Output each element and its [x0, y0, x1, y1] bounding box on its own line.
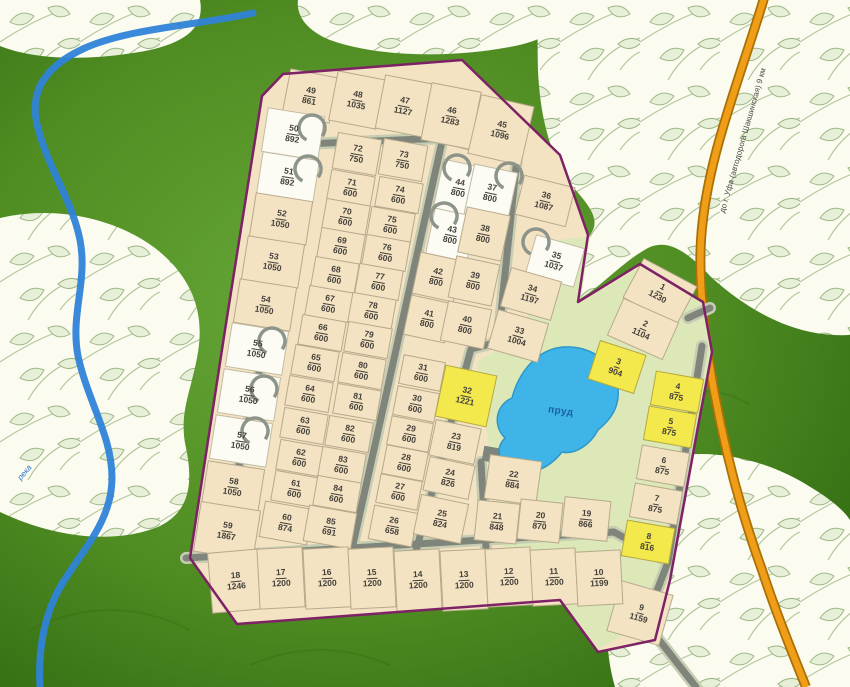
plot-22[interactable] — [484, 455, 542, 506]
plot-40[interactable] — [440, 301, 491, 349]
plot-18[interactable] — [207, 549, 264, 613]
plot-8[interactable] — [621, 520, 675, 564]
plot-11[interactable] — [530, 548, 578, 606]
plot-54[interactable] — [233, 279, 296, 331]
plot-15[interactable] — [348, 547, 396, 609]
plot-72[interactable] — [332, 132, 382, 175]
plot-12[interactable] — [485, 547, 533, 607]
forest-left — [0, 213, 200, 537]
plot-32[interactable] — [435, 365, 497, 427]
plot-17[interactable] — [257, 547, 305, 609]
plot-39[interactable] — [448, 256, 500, 306]
plot-85[interactable] — [303, 505, 357, 549]
plot-14[interactable] — [394, 549, 442, 611]
plot-16[interactable] — [303, 547, 351, 609]
plot-73[interactable] — [378, 138, 428, 181]
plot-21[interactable] — [474, 500, 520, 544]
plot-38[interactable] — [458, 207, 511, 261]
plot-20[interactable] — [517, 499, 563, 543]
plot-10[interactable] — [575, 550, 623, 606]
plot-19[interactable] — [561, 497, 611, 542]
land-plot-map: 4986148103547112746128345109650892518925… — [0, 0, 850, 687]
map-canvas — [0, 0, 850, 687]
plot-13[interactable] — [440, 549, 488, 611]
